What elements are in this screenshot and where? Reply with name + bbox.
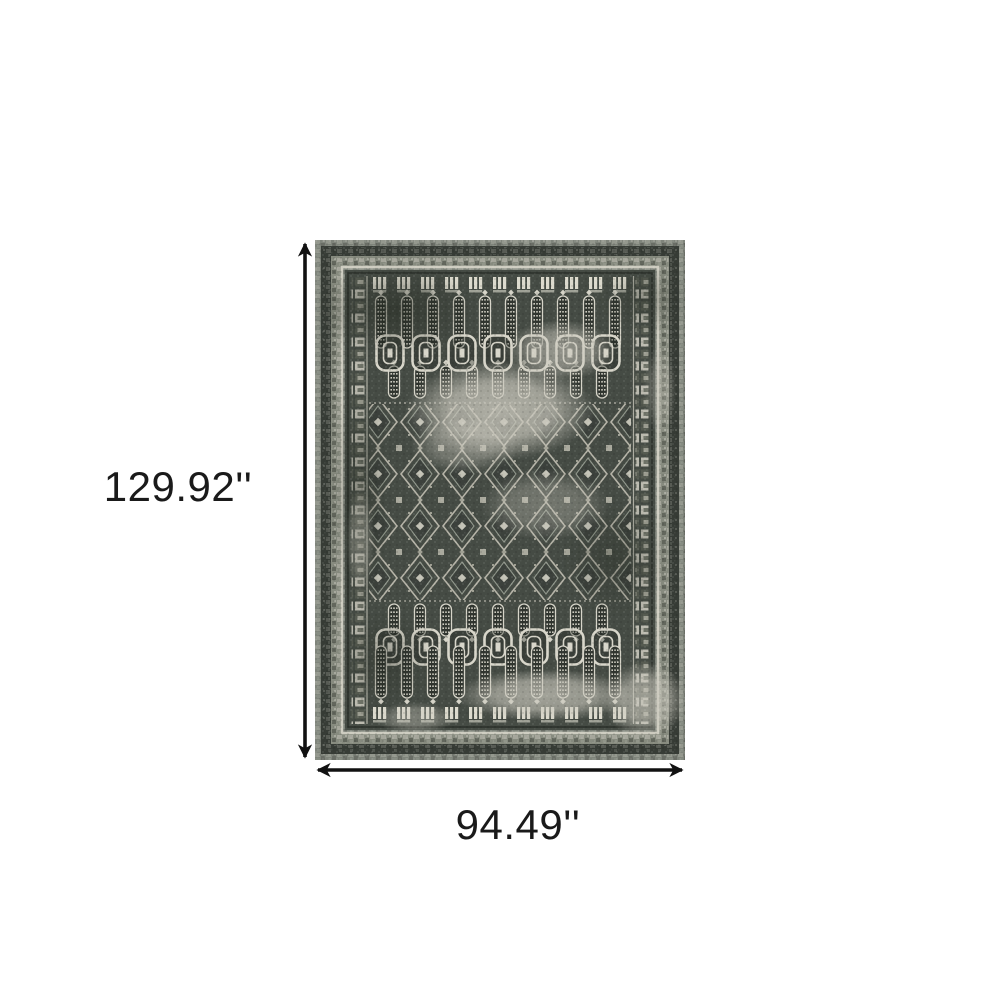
- height-dimension-label: 129.92'': [88, 462, 268, 512]
- rug-image: [315, 240, 685, 760]
- width-dimension-label: 94.49'': [428, 800, 608, 850]
- dimension-diagram: 129.92'' 94.49'': [0, 0, 1000, 1000]
- rug-artwork: [315, 240, 685, 760]
